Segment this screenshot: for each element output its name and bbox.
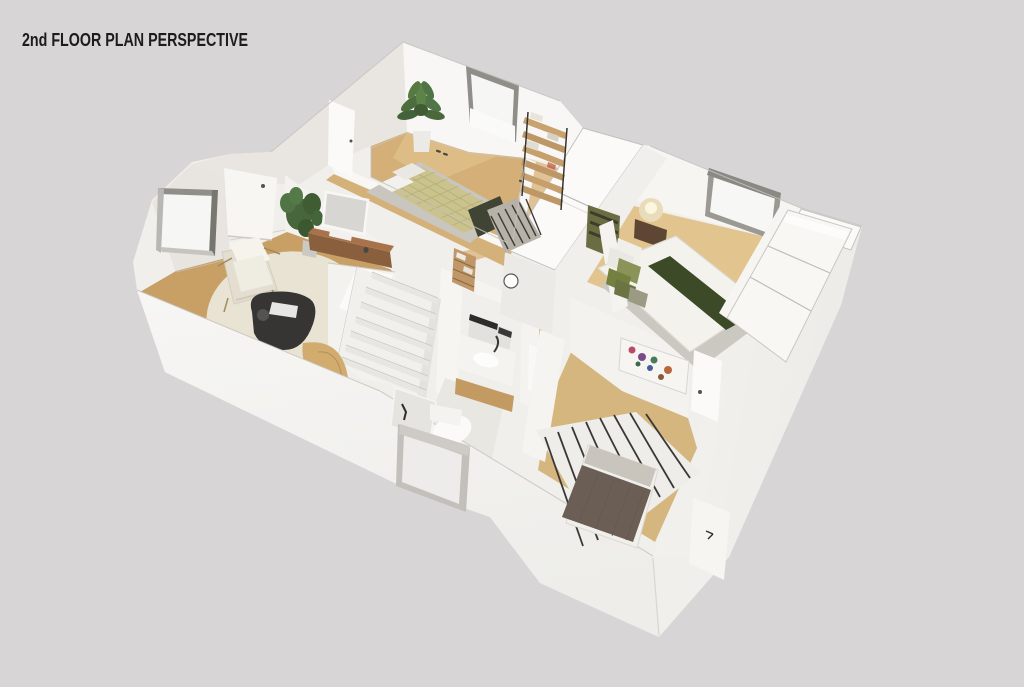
svg-text:2nd FLOOR PLAN PERSPECTIVE: 2nd FLOOR PLAN PERSPECTIVE [22, 30, 248, 50]
